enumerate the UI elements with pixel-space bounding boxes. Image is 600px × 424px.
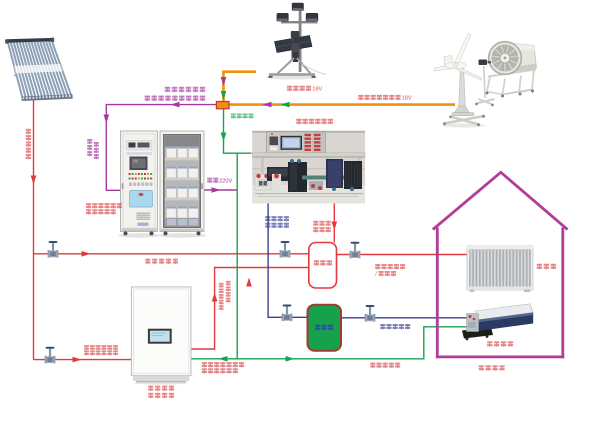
- svg-text:220V: 220V: [219, 178, 232, 184]
- svg-text:18V: 18V: [312, 86, 322, 92]
- svg-text:18V: 18V: [402, 96, 412, 102]
